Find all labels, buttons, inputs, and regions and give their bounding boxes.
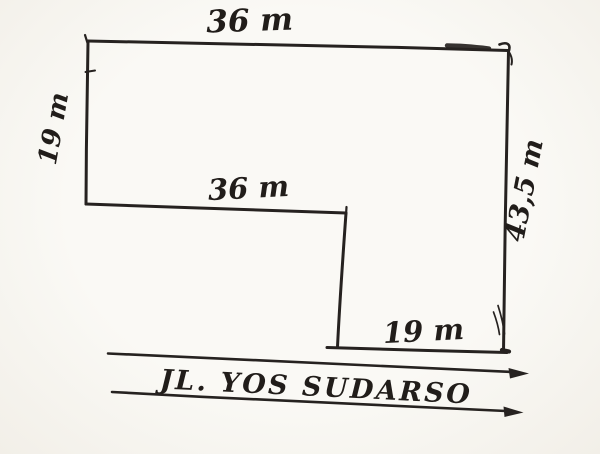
street-arrow-upper-icon <box>509 368 530 379</box>
plot-left-edge <box>86 42 88 204</box>
street-name-label: JL. YOS SUDARSO <box>154 364 473 410</box>
plot-outline <box>85 35 512 353</box>
plot-step-edge <box>338 213 347 347</box>
measurement-left-depth: 19 m <box>33 90 75 167</box>
plot-sketch: 36 m 19 m 36 m 43,5 m 19 m JL. YOS SUDAR… <box>0 0 600 454</box>
measurement-labels: 36 m 19 m 36 m 43,5 m 19 m <box>33 2 550 351</box>
pen-scratch-2 <box>494 312 500 335</box>
plot-sketch-canvas: 36 m 19 m 36 m 43,5 m 19 m JL. YOS SUDAR… <box>0 0 600 454</box>
street-arrow-lower-icon <box>504 407 524 418</box>
measurement-inner-bottom-width: 19 m <box>382 312 465 350</box>
street-marking: JL. YOS SUDARSO <box>108 354 529 418</box>
measurement-top-width: 36 m <box>206 2 294 41</box>
measurement-inner-width: 36 m <box>207 169 290 207</box>
